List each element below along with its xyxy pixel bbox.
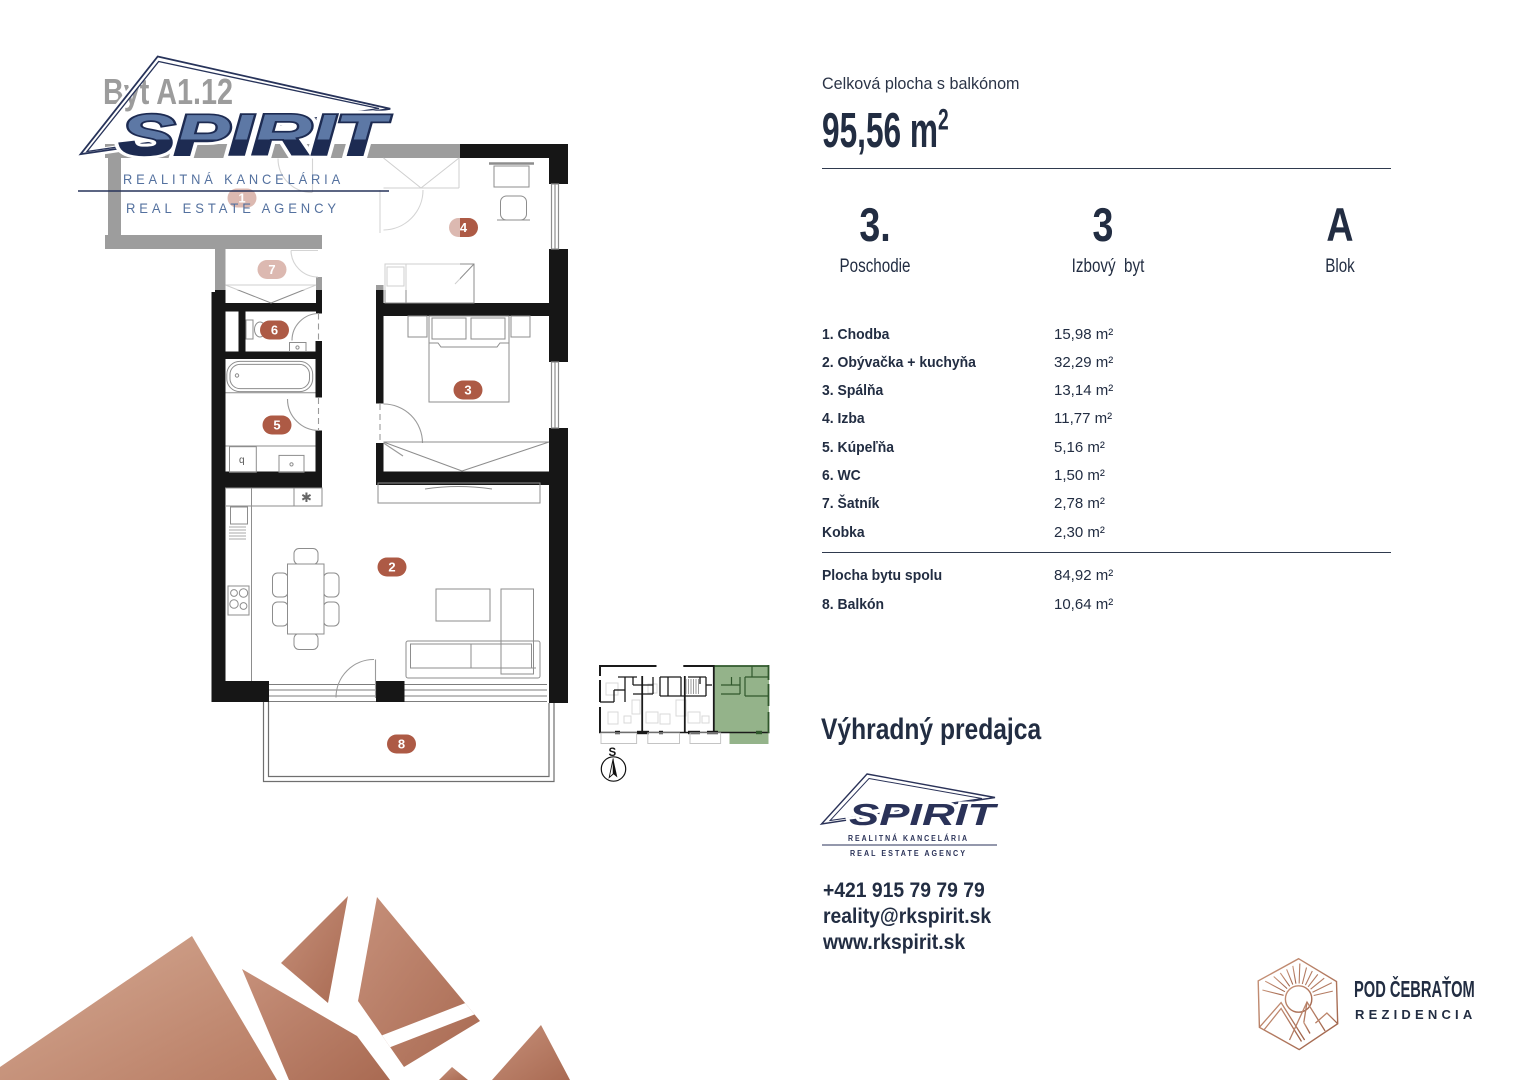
svg-text:REALITNÁ KANCELÁRIA: REALITNÁ KANCELÁRIA (848, 834, 969, 843)
svg-text:8: 8 (398, 737, 405, 752)
svg-text:REAL ESTATE AGENCY: REAL ESTATE AGENCY (850, 849, 967, 858)
svg-text:q: q (239, 455, 245, 466)
svg-text:2: 2 (388, 560, 395, 575)
svg-text:3: 3 (464, 383, 471, 398)
svg-text:REALITNÁ KANCELÁRIA: REALITNÁ KANCELÁRIA (123, 171, 344, 187)
svg-text:6: 6 (271, 323, 278, 338)
svg-text:✱: ✱ (301, 490, 312, 505)
svg-text:REAL ESTATE AGENCY: REAL ESTATE AGENCY (126, 200, 340, 216)
svg-text:5: 5 (273, 418, 280, 433)
svg-text:SPIRIT: SPIRIT (849, 797, 999, 832)
svg-text:4: 4 (460, 220, 468, 235)
